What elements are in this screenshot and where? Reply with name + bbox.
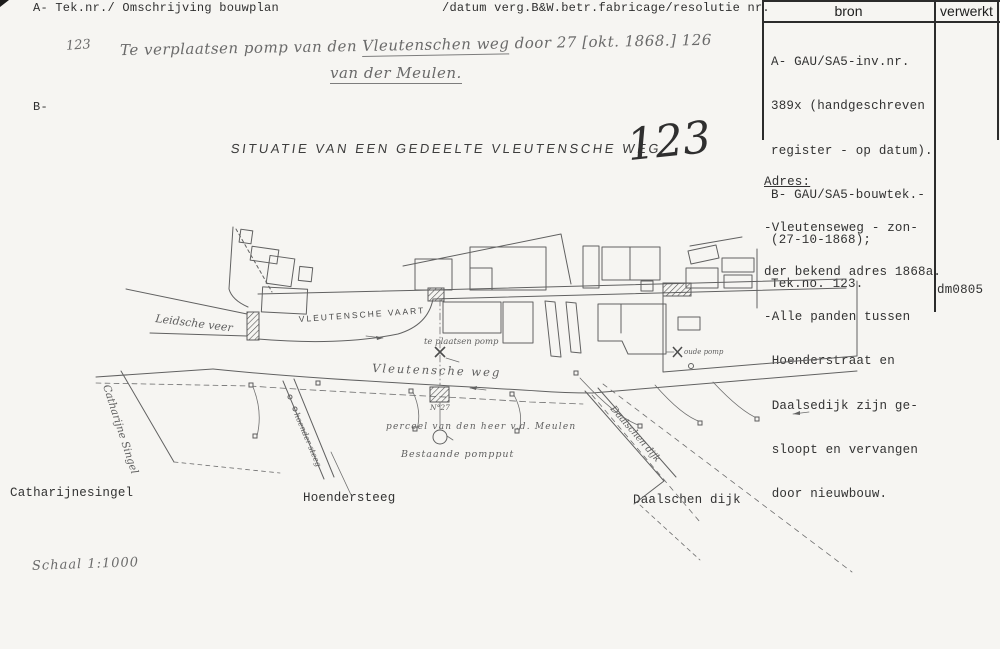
bridge-hatch-east	[663, 283, 691, 296]
label-te-plaatsen-pomp: te plaatsen pomp	[424, 337, 499, 347]
road-daalschen-dijk	[585, 384, 852, 572]
buildings-south	[443, 281, 857, 372]
existing-pump-well-symbol	[433, 430, 447, 444]
label-oude-pomp: oude pomp	[684, 348, 724, 356]
label-perceel-nr: N°27	[429, 403, 450, 412]
bridge-hatch-leidsche-veer	[247, 312, 259, 340]
label-perceel: perceel van den heer v.d. Meulen	[386, 422, 576, 432]
label-catharijne-singel-hand: Catharijne Singel	[100, 383, 140, 475]
buildings-north	[403, 234, 757, 308]
archive-record-card: A- Tek.nr./ Omschrijving bouwplan /datum…	[0, 0, 1000, 649]
buildings-northwest	[229, 227, 313, 314]
label-daalschen-dijk-hand: Daalschen dijk	[607, 403, 663, 465]
label-bestaande-pompput: Bestaande pompput	[400, 449, 514, 460]
label-vleutensche-vaart: VLEUTENSCHE VAART	[298, 305, 425, 324]
label-leidsche-veer: Leidsche veer	[154, 312, 234, 335]
site-map: Leidsche veer VLEUTENSCHE VAART Vleutens…	[0, 0, 1000, 649]
label-vleutensche-weg: Vleutensche weg	[372, 361, 502, 380]
parcel-hatch	[430, 387, 449, 402]
road-hoendersteeg	[283, 379, 352, 497]
